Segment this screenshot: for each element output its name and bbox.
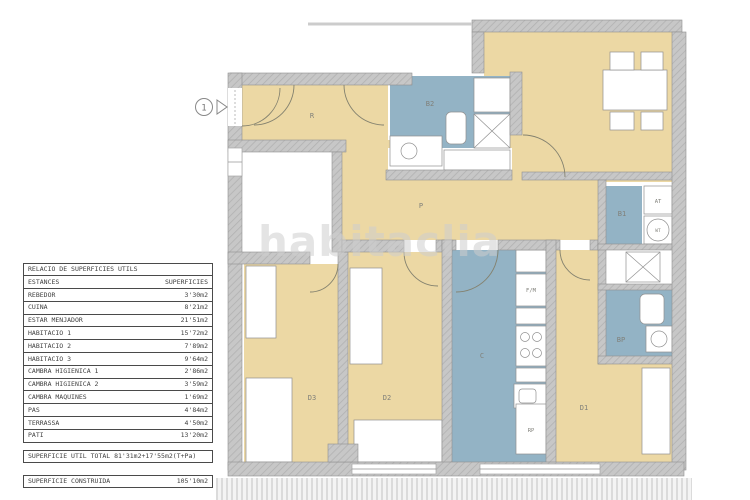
chair <box>610 52 634 70</box>
wardrobe <box>246 266 276 338</box>
room-name: ESTAR MENJADOR <box>28 317 83 324</box>
table-row: TERRASSA4'50m2 <box>23 417 213 430</box>
room-area: 3'59m2 <box>185 381 208 388</box>
entrance-marker: 1 <box>196 99 228 116</box>
room-name: REBEDOR <box>28 292 55 299</box>
room-area: 1'69m2 <box>185 394 208 401</box>
surface-table-rows: REBEDOR3'30m2CUINA8'21m2ESTAR MENJADOR21… <box>23 289 213 443</box>
room-name: HABITACIO 2 <box>28 343 71 350</box>
sink-counter <box>390 136 442 166</box>
room-area: 7'89m2 <box>185 343 208 350</box>
room-area: 9'64m2 <box>185 356 208 363</box>
table-row: HABITACIO 115'72m2 <box>23 327 213 340</box>
room-area: 4'50m2 <box>185 420 208 427</box>
surface-table-header: ESTANCES SUPERFICIES <box>23 276 213 289</box>
bed <box>246 378 292 462</box>
table-row: CAMBRA HIGIENICA 12'86m2 <box>23 366 213 379</box>
room-name: CAMBRA MAQUINES <box>28 394 87 401</box>
label-cuina: C <box>480 352 484 360</box>
table-row: HABITACIO 39'64m2 <box>23 353 213 366</box>
table-row: REBEDOR3'30m2 <box>23 289 213 302</box>
column-surfaces: SUPERFICIES <box>165 279 208 286</box>
surface-total: SUPERFICIE UTIL TOTAL 81'31m2+17'55m2(T+… <box>23 450 213 463</box>
table-row: HABITACIO 27'89m2 <box>23 340 213 353</box>
room-name: HABITACIO 3 <box>28 356 71 363</box>
table-row: CAMBRA HIGIENICA 23'59m2 <box>23 379 213 392</box>
label-nevera: F/M <box>526 288 537 294</box>
terrace-railing <box>216 478 692 500</box>
wardrobe <box>642 368 670 454</box>
chair <box>641 112 663 130</box>
table-row: CUINA8'21m2 <box>23 302 213 315</box>
table-row: ESTAR MENJADOR21'51m2 <box>23 315 213 328</box>
label-dormitori-1: D1 <box>580 404 588 412</box>
counter <box>444 150 510 170</box>
column-rooms: ESTANCES <box>28 279 59 286</box>
surface-table-title: RELACIO DE SUPERFICIES UTILS <box>23 263 213 276</box>
table-row: PAS4'84m2 <box>23 404 213 417</box>
room-name: PAS <box>28 407 40 414</box>
chair <box>610 112 634 130</box>
room-name: HABITACIO 1 <box>28 330 71 337</box>
toilet <box>640 294 664 324</box>
floor-plan-page: 1 habitaclia R P B2 C D1 D2 D3 B1 BP AT … <box>0 0 750 500</box>
entrance-number: 1 <box>201 104 206 114</box>
built-label: SUPERFICIE CONSTRUIDA <box>28 478 110 485</box>
dining-table <box>603 70 667 110</box>
chair <box>641 52 663 70</box>
room-area: 15'72m2 <box>181 330 208 337</box>
room-name: CAMBRA HIGIENICA 2 <box>28 381 98 388</box>
table-row: CAMBRA MAQUINES1'69m2 <box>23 391 213 404</box>
room-area: 8'21m2 <box>185 304 208 311</box>
bed <box>354 420 442 462</box>
label-bany-p: BP <box>617 336 625 344</box>
label-bany-1: B1 <box>618 210 626 218</box>
room-area: 13'20m2 <box>181 432 208 439</box>
label-bany-2: B2 <box>426 100 434 108</box>
label-armari: AT <box>655 199 662 205</box>
surface-table: RELACIO DE SUPERFICIES UTILS ESTANCES SU… <box>23 263 213 488</box>
room-name: CUINA <box>28 304 48 311</box>
label-dormitori-3: D3 <box>308 394 316 402</box>
built-value: 105'10m2 <box>177 478 208 485</box>
room-name: CAMBRA HIGIENICA 1 <box>28 368 98 375</box>
label-pas: P <box>419 202 423 210</box>
room-name: PATI <box>28 432 44 439</box>
closet <box>474 78 510 112</box>
room-name: TERRASSA <box>28 420 59 427</box>
label-termo: WT <box>655 228 661 234</box>
stove <box>516 326 546 366</box>
surface-built: SUPERFICIE CONSTRUIDA 105'10m2 <box>23 475 213 488</box>
toilet <box>446 112 466 144</box>
wardrobe <box>350 268 382 364</box>
room-area: 4'84m2 <box>185 407 208 414</box>
washbasin <box>646 326 672 352</box>
table-row: PATI13'20m2 <box>23 430 213 443</box>
label-rentador: RP <box>528 428 535 434</box>
entrance-arrow-icon <box>217 100 227 114</box>
label-dormitori-2: D2 <box>383 394 391 402</box>
room-area: 2'86m2 <box>185 368 208 375</box>
room-area: 21'51m2 <box>181 317 208 324</box>
watermark: habitaclia <box>258 217 501 266</box>
room-area: 3'30m2 <box>185 292 208 299</box>
